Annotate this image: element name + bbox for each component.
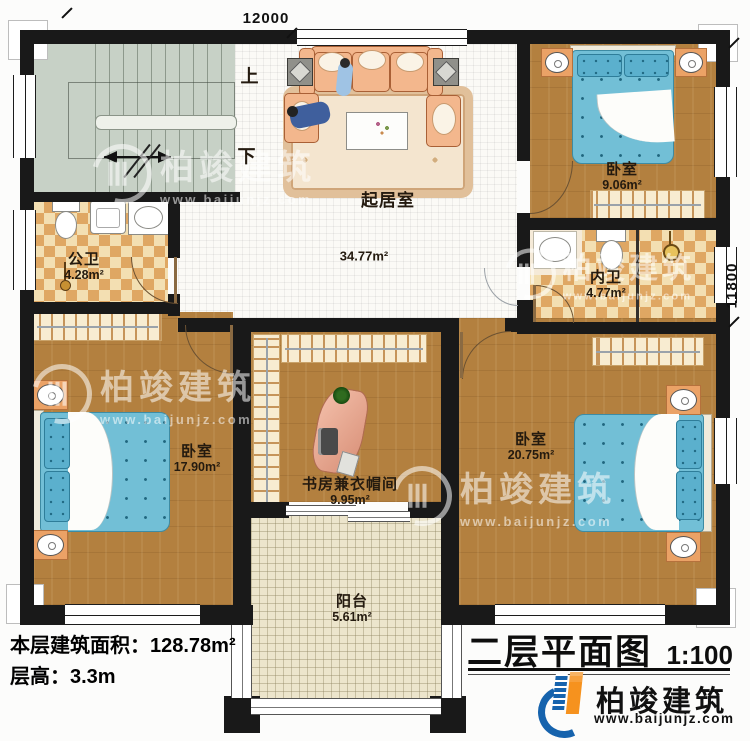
bed-pillow xyxy=(577,54,622,77)
wardrobe xyxy=(592,337,704,366)
title-underline xyxy=(468,668,730,671)
room-name: 书房兼衣帽间 xyxy=(302,476,398,493)
room-area: 9.06m² xyxy=(602,178,642,192)
room-area: 4.77m² xyxy=(586,286,626,300)
toilet-bowl xyxy=(600,240,623,270)
room-label-bath-public: 公卫 4.28m² xyxy=(64,251,104,283)
speaker xyxy=(433,58,459,86)
table-flowers xyxy=(372,118,394,138)
wall-bedroom-tr-left xyxy=(517,44,530,161)
stairs-up-label: 上 xyxy=(241,67,260,88)
nightstand xyxy=(666,532,701,562)
bed-pillow xyxy=(624,54,669,77)
room-label-bedroom-tr: 卧室 9.06m² xyxy=(602,161,642,193)
dimension-tick xyxy=(61,7,72,18)
nightstand xyxy=(666,385,701,415)
window xyxy=(13,75,36,158)
living-room-floor xyxy=(178,202,238,318)
window xyxy=(714,418,737,484)
lamp-icon xyxy=(679,52,703,73)
floor-info: 本层建筑面积：128.78m² 层高：3.3m xyxy=(10,631,236,693)
floor-plan: 起居室 34.77m² 卧室 9.06m² 公卫 4.28m² 内卫 4.77m… xyxy=(0,0,750,741)
wardrobe xyxy=(590,190,705,219)
door-leaf xyxy=(230,325,233,375)
room-name: 起居室 xyxy=(361,191,415,211)
window xyxy=(714,87,737,177)
window xyxy=(495,604,665,625)
room-area: 34.77m² xyxy=(340,250,388,265)
room-area: 9.95m² xyxy=(302,493,398,507)
floor-height-value: 3.3m xyxy=(70,666,116,688)
wall-bath-public-bottom xyxy=(28,302,178,314)
floor-area-value: 128.78m² xyxy=(150,635,236,657)
window xyxy=(13,210,36,290)
lamp-icon xyxy=(545,52,569,73)
wall-bedroom-tr-left xyxy=(517,213,530,267)
room-label-bedroom-bl: 卧室 17.90m² xyxy=(174,443,221,475)
sofa-pillow xyxy=(396,52,424,72)
brand-logo xyxy=(540,672,590,728)
wall-vertical-right xyxy=(441,318,459,625)
room-label-living: 起居室 xyxy=(361,191,415,211)
toilet-bowl xyxy=(55,211,77,239)
bed-pillow xyxy=(44,418,70,469)
wall-study-bottom xyxy=(251,502,289,518)
room-name: 内卫 xyxy=(586,269,626,286)
room-area: 4.28m² xyxy=(64,268,104,282)
window xyxy=(297,29,467,46)
door-leaf xyxy=(533,285,536,322)
dimension-top: 12000 xyxy=(238,10,294,27)
shower-head xyxy=(663,244,680,261)
nightstand xyxy=(33,380,68,410)
dimension-tick xyxy=(728,316,739,327)
plant xyxy=(333,387,350,404)
wall-bath-private-bottom xyxy=(517,322,716,334)
wardrobe xyxy=(33,312,162,341)
wall-bath-public-right xyxy=(168,192,180,258)
balcony-sliding-door xyxy=(348,511,410,522)
nightstand xyxy=(675,48,707,77)
lamp-icon xyxy=(37,384,64,406)
person-head xyxy=(287,106,298,117)
lamp-icon xyxy=(37,534,64,556)
room-label-bedroom-br: 卧室 20.75m² xyxy=(508,431,555,463)
bed-pillow xyxy=(44,471,70,522)
lamp-icon xyxy=(670,536,697,558)
room-name: 公卫 xyxy=(64,251,104,268)
door-leaf xyxy=(460,332,463,378)
person-head xyxy=(340,58,350,68)
floor-area-label: 本层建筑面积： xyxy=(10,635,150,657)
room-name: 卧室 xyxy=(174,443,221,460)
nightstand xyxy=(541,48,573,77)
balcony-railing xyxy=(441,625,462,698)
door-leaf xyxy=(174,257,177,303)
room-label-study: 书房兼衣帽间 9.95m² xyxy=(302,476,398,508)
brand-website: www.baijunjz.com xyxy=(594,711,735,726)
sofa-pillow xyxy=(358,50,386,70)
room-area: 5.61m² xyxy=(332,610,372,624)
floor-height-line: 层高：3.3m xyxy=(10,662,236,693)
balcony-railing xyxy=(251,698,441,715)
bed-sheet xyxy=(634,414,679,530)
bed-pillow xyxy=(676,471,702,520)
room-label-balcony: 阳台 5.61m² xyxy=(332,593,372,625)
monitor xyxy=(318,428,338,455)
speaker xyxy=(287,58,313,86)
wardrobe xyxy=(253,334,280,512)
room-name: 卧室 xyxy=(602,161,642,178)
washing-machine-door xyxy=(96,208,120,228)
wall-vertical-left xyxy=(233,318,251,625)
window xyxy=(65,604,200,625)
wall-bath-private-top xyxy=(530,218,716,230)
shower-hose xyxy=(669,231,671,245)
dimension-right: 11800 xyxy=(724,256,741,316)
wardrobe xyxy=(281,334,427,363)
room-area-living: 34.77m² xyxy=(340,250,388,265)
title-underline xyxy=(468,674,730,675)
lamp-icon xyxy=(670,389,697,411)
room-area: 17.90m² xyxy=(174,460,221,474)
bed-pillow xyxy=(676,420,702,469)
shower-partition xyxy=(636,230,639,322)
floor-height-label: 层高： xyxy=(10,666,70,688)
stairs-down-label: 下 xyxy=(238,147,257,168)
wall-study-bottom xyxy=(408,502,441,518)
armchair-pillow xyxy=(432,103,456,135)
stair-handrail xyxy=(95,115,237,130)
room-name: 阳台 xyxy=(332,593,372,610)
room-area: 20.75m² xyxy=(508,448,555,462)
wall-below-stairs xyxy=(33,192,240,202)
sink-basin xyxy=(134,206,163,229)
plan-title: 二层平面图 xyxy=(467,633,652,672)
sink-basin xyxy=(539,237,571,262)
room-label-bath-private: 内卫 4.77m² xyxy=(586,269,626,301)
stair-arrow-left xyxy=(104,151,117,163)
stair-arrow-right xyxy=(158,151,171,163)
nightstand xyxy=(33,530,68,560)
plan-scale: 1:100 xyxy=(666,640,733,670)
floor-area-line: 本层建筑面积：128.78m² xyxy=(10,631,236,662)
room-name: 卧室 xyxy=(508,431,555,448)
